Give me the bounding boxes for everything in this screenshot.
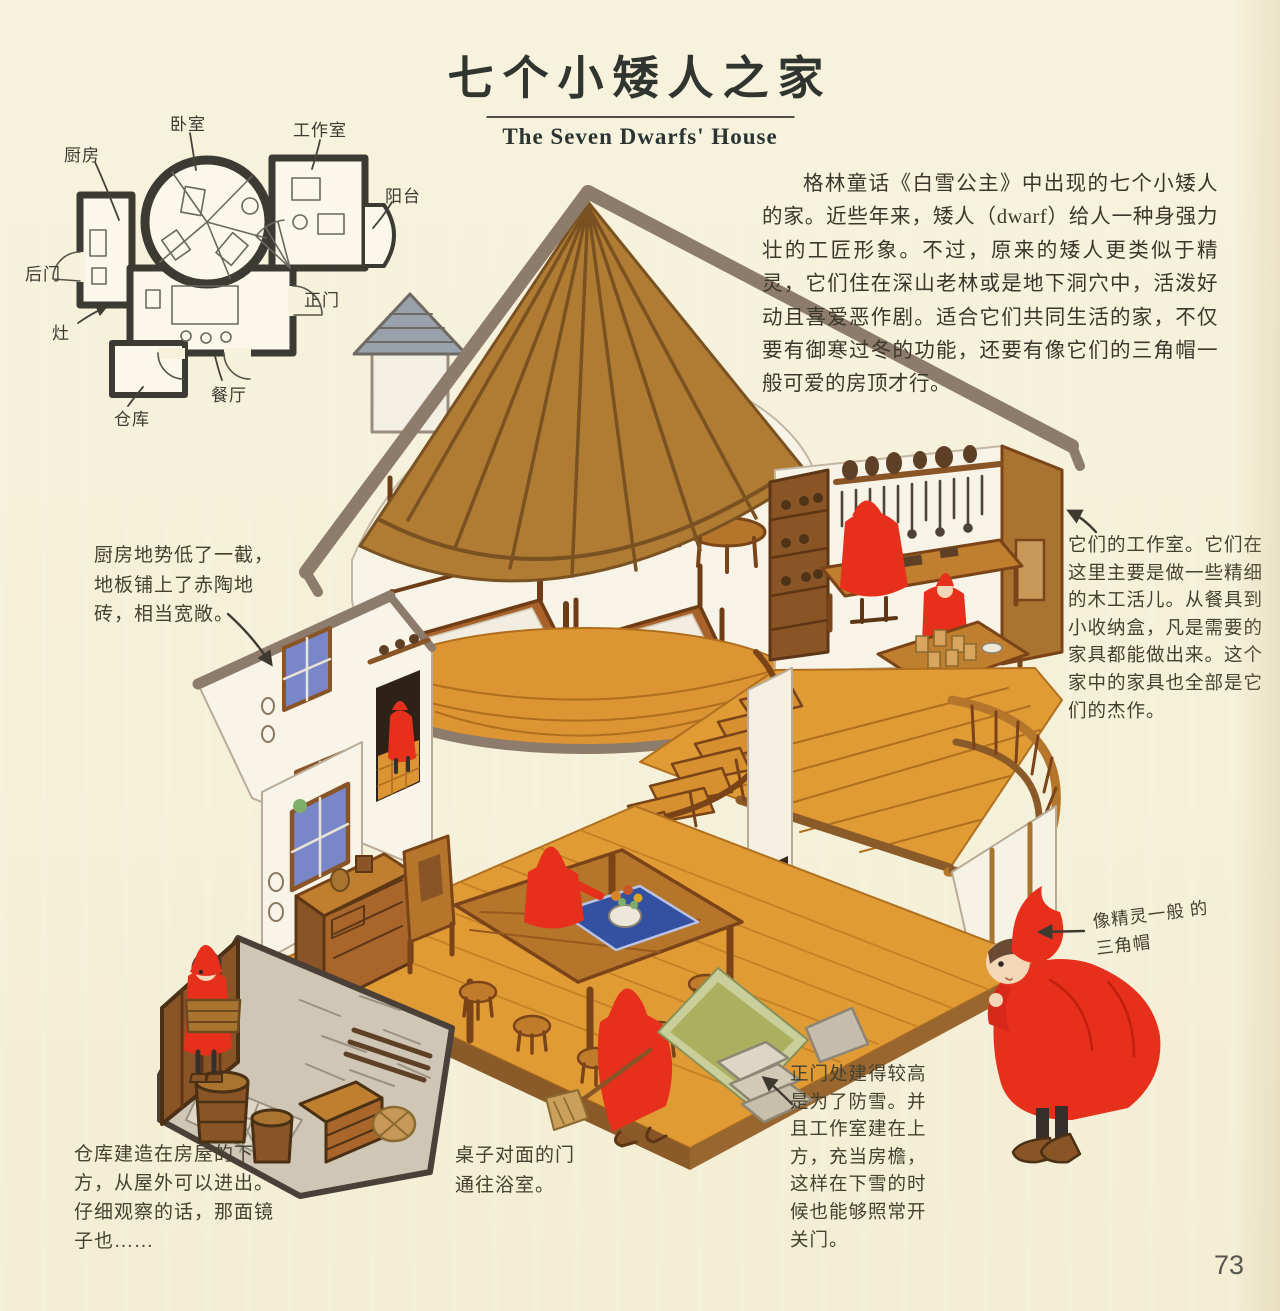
note-storage: 仓库建造在房屋的下方，从屋外可以进出。仔细观察的话，那面镜子也……: [74, 1140, 290, 1256]
cellar-sack: [373, 1107, 415, 1141]
arrow-hat-note: [1040, 931, 1084, 932]
big-dwarf-hand: [989, 993, 1003, 1007]
arrow-workshop-note: [1069, 511, 1096, 532]
plan-balcony-bump: [365, 205, 394, 266]
intro-paragraph: 格林童话《白雪公主》中出现的七个小矮人的家。近些年来，矮人（dwarf）给人一种…: [762, 168, 1218, 402]
plan-label-front-door: 正门: [304, 286, 340, 311]
plan-label-bedroom: 卧室: [170, 110, 206, 135]
note-kitchen: 厨房地势低了一截，地板铺上了赤陶地砖，相当宽敞。: [94, 541, 280, 630]
note-workshop: 它们的工作室。它们在这里主要是做一些精细的木工活儿。从餐具到小收纳盒，凡是需要的…: [1068, 533, 1274, 726]
big-dwarf-cloak: [993, 959, 1160, 1120]
plan-label-storage: 仓库: [114, 405, 150, 430]
plan-label-balcony: 阳台: [385, 182, 421, 207]
note-front-door: 正门处建得较高是为了防雪。并且工作室建在上方，充当房檐，这样在下雪的时候也能够照…: [790, 1062, 936, 1255]
page-number: 73: [1214, 1250, 1244, 1281]
plan-label-workshop: 工作室: [293, 116, 347, 141]
plan-label-kitchen: 厨房: [64, 141, 100, 166]
plan-label-back-door: 后门: [25, 260, 61, 285]
title-divider: [486, 116, 794, 118]
note-bathroom-door: 桌子对面的门通往浴室。: [455, 1141, 587, 1200]
page-subtitle: The Seven Dwarfs' House: [448, 124, 833, 150]
page-title: 七个小矮人之家: [448, 42, 833, 108]
floor-plan-sketch: [53, 133, 394, 406]
plan-label-dining: 餐厅: [211, 381, 247, 406]
page-header: 七个小矮人之家 The Seven Dwarfs' House: [448, 42, 833, 150]
plan-label-stove: 灶: [52, 319, 70, 344]
